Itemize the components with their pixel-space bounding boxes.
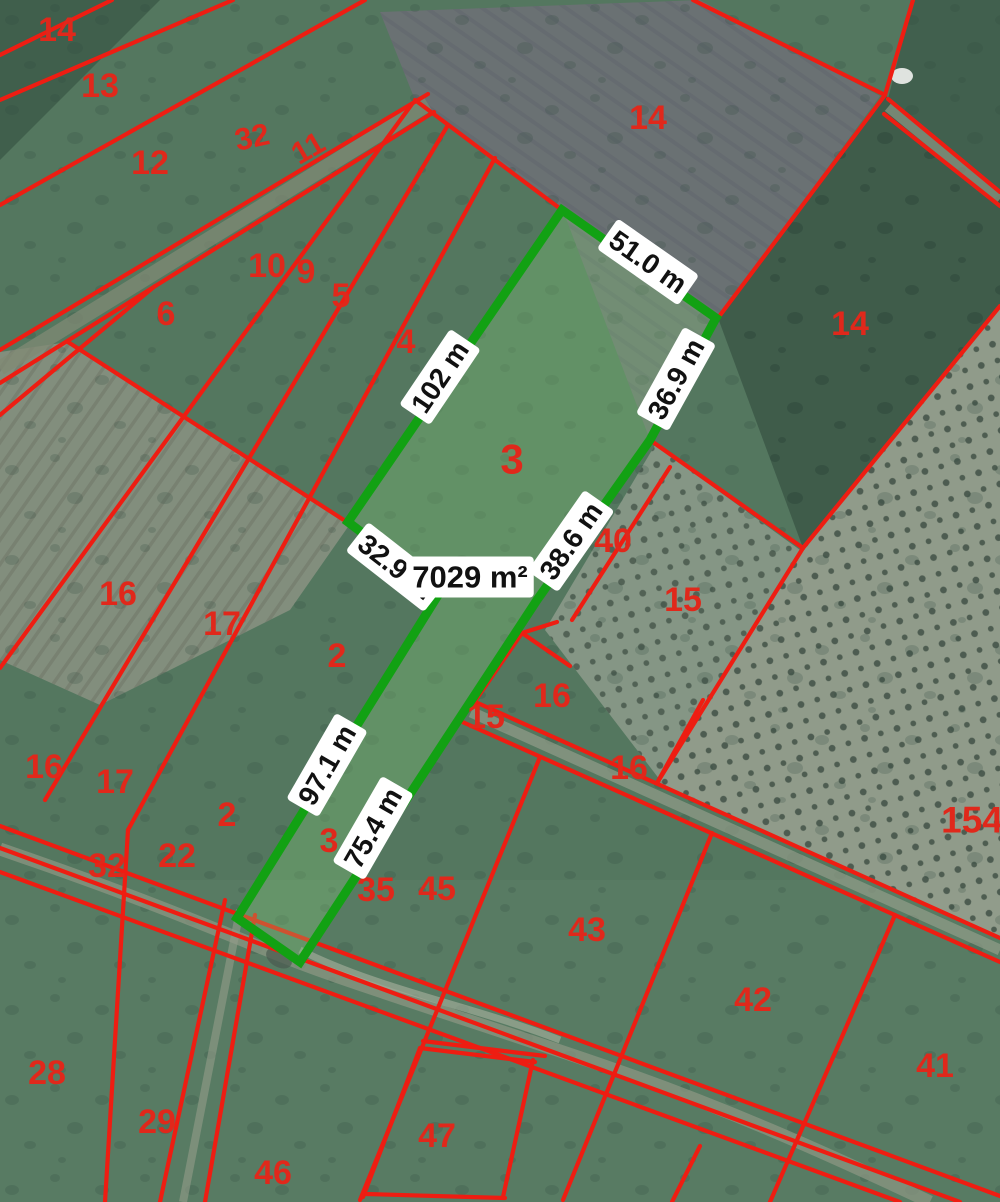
- parcel-number-label: 3: [320, 822, 339, 860]
- parcel-number-label: 3: [500, 436, 523, 483]
- parcel-number-label: 15: [467, 698, 505, 736]
- parcel-number-label: 12: [131, 144, 169, 182]
- parcel-number-label: 47: [418, 1117, 456, 1155]
- parcel-number-label: 42: [734, 981, 772, 1019]
- parcel-number-label: 154: [941, 800, 1000, 841]
- map-viewport[interactable]: 1413123211109564141434015161721615161617…: [0, 0, 1000, 1202]
- parcel-number-label: 45: [418, 870, 456, 908]
- parcel-number-label: 2: [328, 637, 347, 675]
- parcel-number-label: 22: [158, 837, 196, 875]
- parcel-number-label: 15: [664, 581, 702, 619]
- area-label: 7029 m²: [406, 557, 533, 598]
- parcel-number-label: 14: [629, 99, 667, 137]
- svg-text:7029 m²: 7029 m²: [412, 560, 527, 595]
- parcel-number-label: 43: [568, 911, 606, 949]
- parcel-number-label: 28: [28, 1054, 66, 1092]
- parcel-number-label: 46: [254, 1154, 292, 1192]
- parcel-number-label: 13: [81, 67, 119, 105]
- parcel-number-label: 32: [231, 116, 272, 157]
- parcel-number-label: 9: [297, 253, 316, 291]
- parcel-number-label: 41: [916, 1047, 954, 1085]
- parcel-number-label: 10: [248, 247, 286, 285]
- parcel-number-label: 16: [99, 575, 137, 613]
- parcel-number-label: 5: [332, 277, 351, 315]
- parcel-number-label: 14: [38, 11, 76, 49]
- parcel-number-label: 17: [203, 605, 241, 643]
- parcel-number-label: 29: [138, 1103, 176, 1141]
- parcel-number-label: 16: [533, 677, 571, 715]
- parcel-number-label: 6: [157, 295, 176, 333]
- parcel-number-label: 16: [25, 748, 63, 786]
- cadastral-map[interactable]: 1413123211109564141434015161721615161617…: [0, 0, 1000, 1202]
- parcel-number-label: 17: [96, 763, 134, 801]
- parcel-number-label: 4: [397, 323, 416, 361]
- parcel-number-label: 16: [610, 749, 648, 787]
- parcel-number-label: 14: [831, 305, 869, 343]
- parcel-number-label: 2: [218, 796, 237, 834]
- parcel-number-label: 32: [88, 847, 126, 885]
